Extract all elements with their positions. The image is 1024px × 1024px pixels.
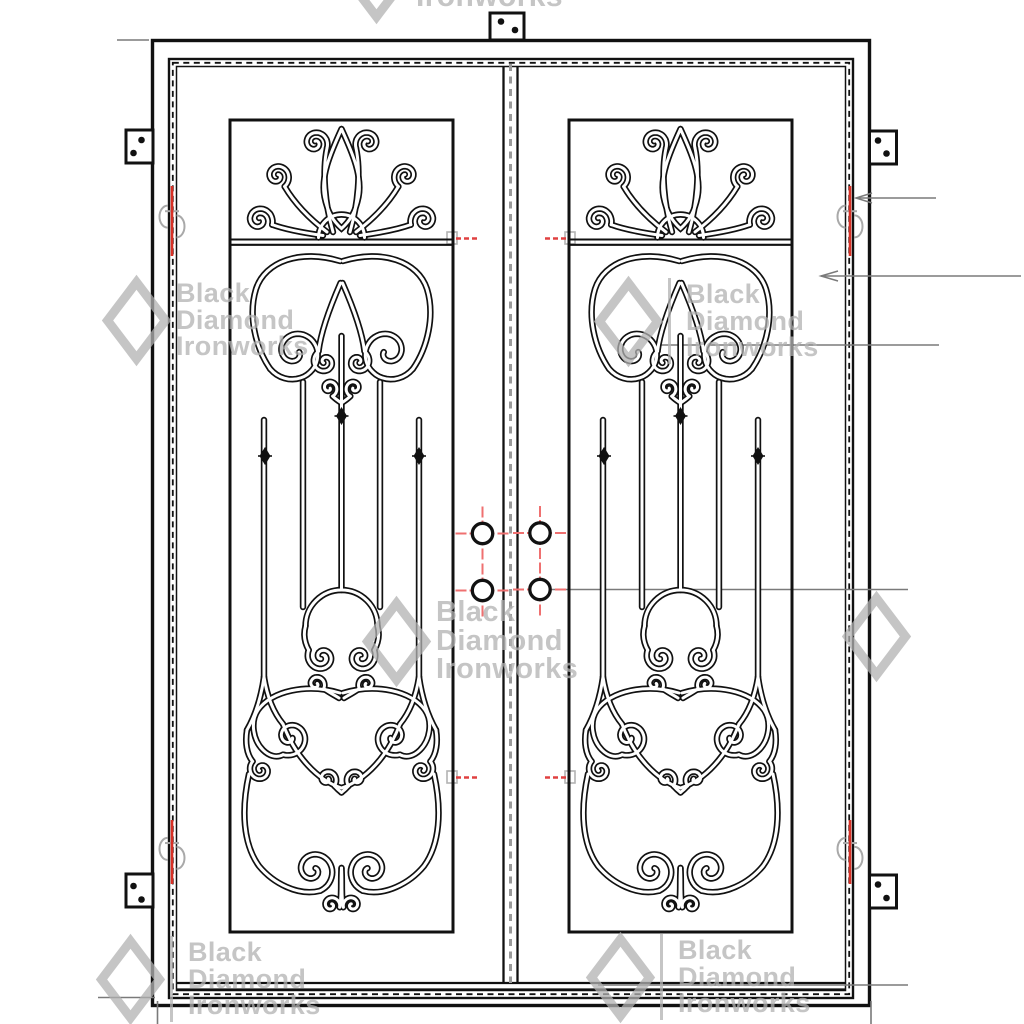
technical-drawing-canvas: Ironworks Black Diamond Ironworks Black … (0, 0, 1024, 1024)
double-door-technical-drawing (0, 0, 1024, 1024)
